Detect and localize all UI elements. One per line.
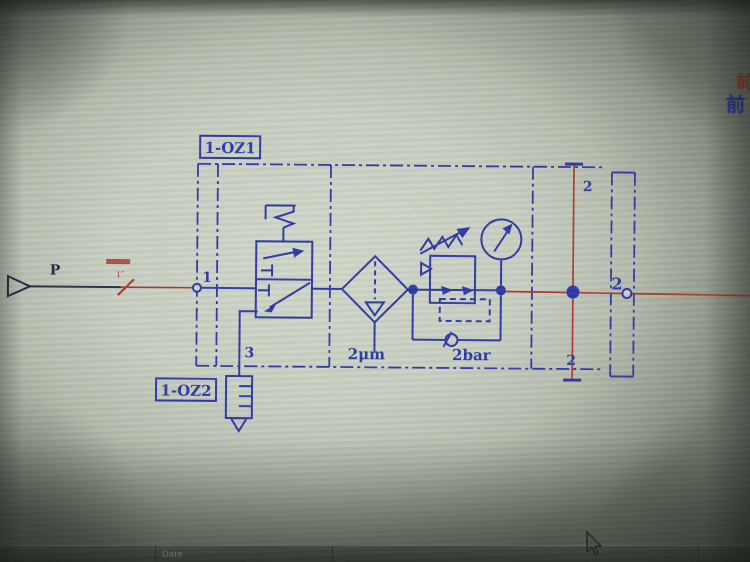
tag-1oz1-label: 1-OZ1 <box>205 139 256 157</box>
enclosure-left-border <box>196 164 198 366</box>
supply-pipe <box>30 286 121 287</box>
port-block-right <box>633 173 635 377</box>
inlet-port-label: 1 <box>202 270 212 286</box>
junction-dot-c <box>566 285 579 298</box>
inlet-port-1: 1 <box>193 270 256 293</box>
junction-dot-a <box>408 285 418 295</box>
drawing-titleblock: Date <box>0 545 750 562</box>
branch-line-vertical <box>572 165 574 379</box>
mouse-cursor-icon[interactable] <box>583 530 605 558</box>
filter-rating-label: 2μm <box>348 345 386 363</box>
enclosure-right-border <box>531 167 533 369</box>
shutoff-valve <box>256 205 313 317</box>
pipe-note-illegible <box>106 259 130 264</box>
photographed-screen: 1-OZ1 1-OZ2 P 1″ 1 <box>0 0 750 562</box>
titleblock-divider <box>698 546 699 562</box>
pneumatic-schematic: 1-OZ1 1-OZ2 P 1″ 1 <box>0 0 750 562</box>
regulator-body <box>430 256 475 303</box>
cad-canvas: 1-OZ1 1-OZ2 P 1″ 1 <box>0 0 750 562</box>
adjustment-spring-icon <box>420 227 470 254</box>
main-output-line: 2 2 <box>504 163 750 381</box>
junction-dot-b <box>496 285 506 295</box>
exhaust-port-label: 3 <box>244 345 254 361</box>
enclosure-top-border <box>198 164 604 168</box>
tag-1oz1: 1-OZ1 <box>200 136 260 159</box>
titleblock-divider <box>155 546 156 562</box>
filter-water-trap <box>366 302 384 315</box>
titleblock-date-label: Date <box>162 549 183 559</box>
titleblock-divider <box>332 546 333 562</box>
pressure-gauge <box>481 219 522 285</box>
enclosure-divider-1 <box>216 164 218 366</box>
outlet-port-label: 2 <box>611 274 622 293</box>
branch-bottom-label: 2 <box>566 353 576 369</box>
air-source: P <box>8 262 121 297</box>
enclosure-bottom-border <box>196 366 602 370</box>
manual-actuator-icon <box>265 205 295 241</box>
pipe-size-note: 1″ <box>116 270 124 279</box>
tag-1oz2: 1-OZ2 <box>156 378 216 401</box>
corner-character-blue: 前 <box>726 90 745 117</box>
tag-1oz2-label: 1-OZ2 <box>160 381 211 399</box>
valve-exhaust-arrowhead <box>264 304 276 312</box>
outlet-port-2: 2 <box>611 274 631 298</box>
source-triangle-icon <box>8 276 30 296</box>
pipe-break-note: 1″ <box>106 259 193 296</box>
valve-flow-arrowhead <box>292 248 304 258</box>
supply-port-label: P <box>50 262 61 278</box>
pressure-regulator <box>412 227 501 348</box>
inlet-line-red <box>121 287 193 288</box>
branch-top-label: 2 <box>583 179 593 195</box>
enclosure-divider-2 <box>329 165 331 367</box>
filter-to-regulator-line <box>408 290 501 291</box>
air-filter <box>341 256 408 352</box>
silencer-outlet-triangle <box>231 418 247 431</box>
regulator-setting-label: 2bar <box>452 346 492 364</box>
exhaust-silencer <box>226 376 252 431</box>
